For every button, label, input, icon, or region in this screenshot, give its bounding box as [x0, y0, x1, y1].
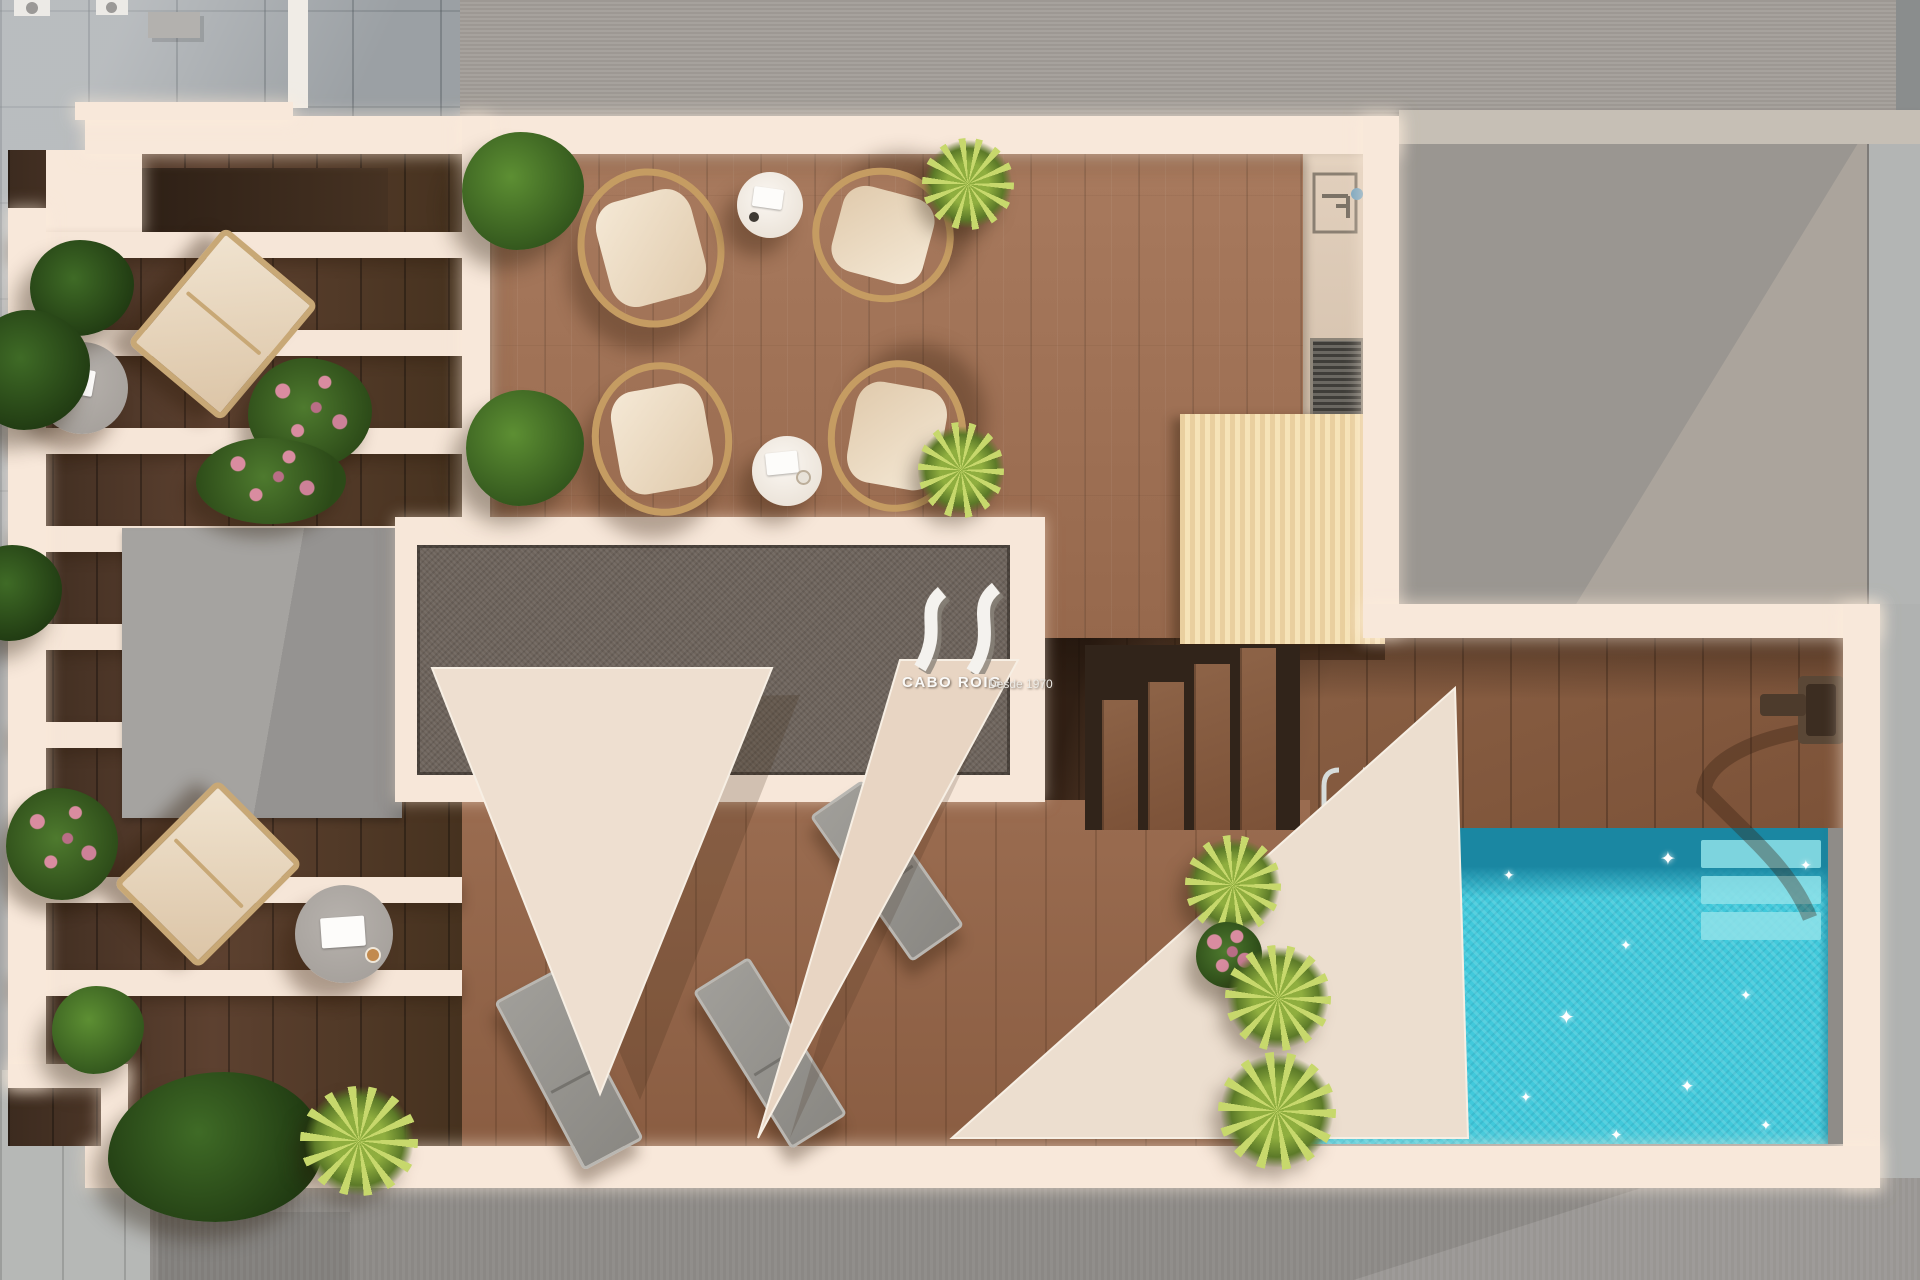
- side-table-gray: [295, 885, 393, 983]
- coffee-table-white: [752, 436, 822, 506]
- roof-access-box: [122, 528, 402, 818]
- coffee-table-white: [737, 172, 803, 238]
- slatted-pergola-canopy: [1180, 414, 1385, 644]
- plant-palm: [1225, 945, 1331, 1051]
- water-sparkle-icon: ✦: [1760, 1118, 1772, 1132]
- water-sparkle-icon: ✦: [1558, 1008, 1575, 1028]
- shade-sails: [380, 630, 1500, 1150]
- chair-cushion: [607, 380, 717, 498]
- roof-duct: [148, 12, 200, 38]
- av-ribbon-monogram-icon: [896, 582, 1016, 674]
- street-light-patch: [150, 1178, 1920, 1280]
- plant-palm: [1185, 835, 1281, 935]
- terrace-wall-top-step: [75, 102, 293, 120]
- street-mat: [158, 1212, 350, 1280]
- water-sparkle-icon: ✦: [1610, 1128, 1623, 1143]
- sink-and-faucet-icon: [1308, 166, 1364, 244]
- neighbor-parapet: [1399, 110, 1920, 144]
- rooftop-terrace-render: ✦ ✦ ✦ ✦ ✦ ✦ ✦ ✦ ✦ ✦ ✦ ✦ ✦ ✦: [0, 0, 1920, 1280]
- terrace-wall-top: [85, 116, 1399, 154]
- table-cup: [365, 947, 381, 963]
- terrace-wall-right-upper: [1363, 116, 1399, 636]
- water-sparkle-icon: ✦: [1740, 988, 1752, 1002]
- table-tray: [752, 186, 784, 210]
- vent-grille: [1310, 338, 1364, 420]
- plant-flowering: [196, 438, 346, 524]
- neighbor-roof-top: [460, 0, 1920, 116]
- neighbor-roof-top-corner: [1896, 0, 1920, 116]
- street-bottom: [150, 1178, 1920, 1280]
- water-sparkle-icon: ✦: [1503, 868, 1515, 882]
- corner-wall-top-left: [46, 150, 142, 236]
- shade-sail-middle: [758, 660, 1018, 1138]
- neighbor-wall-right-lower: [1880, 604, 1920, 1178]
- water-sparkle-icon: ✦: [1620, 938, 1632, 952]
- plant-flowering: [6, 788, 118, 900]
- neighbor-roof-right: [1399, 144, 1920, 604]
- water-sparkle-icon: ✦: [1520, 1090, 1532, 1104]
- table-cup: [749, 212, 759, 222]
- table-tray: [765, 450, 799, 475]
- plant-palm: [300, 1086, 418, 1196]
- neighbor-wall-strip: [1867, 144, 1920, 604]
- plant-palm: [918, 422, 1004, 518]
- sunlight-triangle: [1399, 144, 1920, 604]
- roof-vent-cap-icon: [106, 2, 117, 13]
- chair-cushion: [590, 183, 712, 313]
- watermark: CABO ROIG Desde 1970: [878, 578, 1108, 708]
- pool-wall-shadow: [1828, 828, 1843, 1144]
- water-sparkle-icon: ✦: [1660, 850, 1676, 869]
- terrace-wall-right-lower: [1843, 604, 1880, 1188]
- water-sparkle-icon: ✦: [1680, 1078, 1694, 1095]
- plant-palm: [922, 138, 1014, 230]
- plant-palm: [1218, 1052, 1336, 1170]
- neighbor-parapet-white: [288, 0, 308, 108]
- watermark-tagline: Desde 1970: [988, 677, 1053, 691]
- table-cup: [796, 470, 811, 485]
- roof-vent-cap-icon: [26, 2, 38, 14]
- pergola-planter-dark: [142, 168, 388, 232]
- table-magazine: [320, 916, 366, 949]
